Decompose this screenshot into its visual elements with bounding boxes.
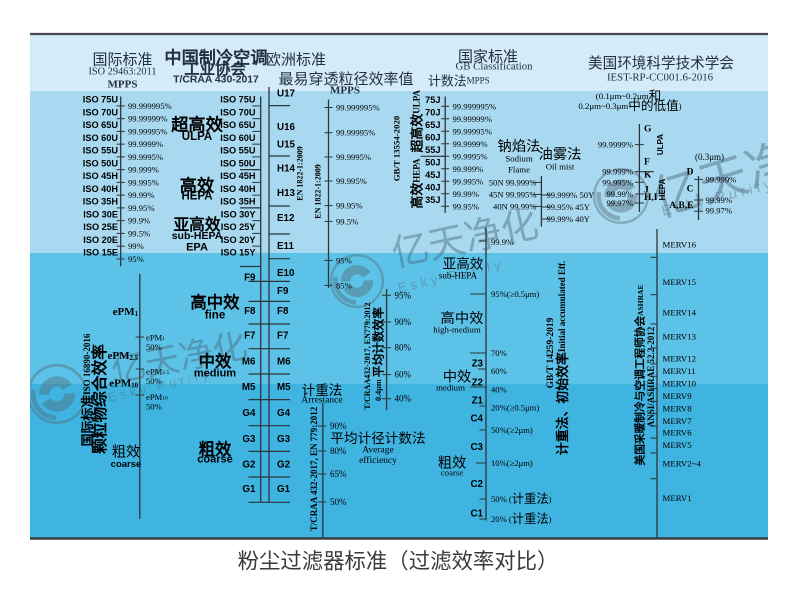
svg-text:ISO 29463:2011: ISO 29463:2011 <box>89 67 157 78</box>
svg-text:99.97%: 99.97% <box>706 206 733 216</box>
svg-text:T/CRAA 432-2017, EN 779:2012: T/CRAA 432-2017, EN 779:2012 <box>309 406 319 531</box>
svg-text:99.5%: 99.5% <box>336 216 358 226</box>
svg-text:ISO 20Y: ISO 20Y <box>221 235 256 245</box>
svg-text:35J: 35J <box>425 195 440 205</box>
svg-text:G4: G4 <box>277 408 291 419</box>
svg-text:50% (计重法): 50% (计重法) <box>491 492 552 506</box>
svg-text:ISO 50U: ISO 50U <box>220 158 256 168</box>
svg-text:E11: E11 <box>277 241 294 252</box>
svg-text:MERV14: MERV14 <box>663 308 697 318</box>
svg-text:99.999995%: 99.999995% <box>336 103 380 113</box>
svg-text:MERV7: MERV7 <box>663 416 693 426</box>
svg-text:Z1: Z1 <box>472 396 484 407</box>
svg-text:EPA: EPA <box>186 242 208 254</box>
svg-text:99.999995%: 99.999995% <box>453 101 497 111</box>
svg-text:M5: M5 <box>277 382 291 393</box>
svg-text:99.95%: 99.95% <box>336 201 363 211</box>
svg-text:MERV9: MERV9 <box>663 391 693 401</box>
svg-text:99.9999%: 99.9999% <box>128 139 163 149</box>
svg-text:F8: F8 <box>277 306 289 317</box>
svg-text:40%: 40% <box>395 394 412 404</box>
svg-text:80%: 80% <box>330 446 347 456</box>
svg-text:85%: 85% <box>336 280 352 290</box>
svg-text:99.99%: 99.99% <box>453 189 480 199</box>
svg-text:H14: H14 <box>277 164 296 175</box>
svg-text:95%: 95% <box>395 290 412 300</box>
svg-text:MERV11: MERV11 <box>663 366 696 376</box>
svg-text:油雾法: 油雾法 <box>539 146 582 163</box>
svg-text:M6: M6 <box>277 357 291 368</box>
svg-text:ISO 55U: ISO 55U <box>220 146 256 156</box>
svg-text:99.999995%: 99.999995% <box>128 101 172 111</box>
svg-text:ISO 20E: ISO 20E <box>83 235 118 245</box>
svg-text:sub-HEPA: sub-HEPA <box>439 271 478 281</box>
svg-text:50J: 50J <box>425 158 440 168</box>
svg-text:10%(≥2μm): 10%(≥2μm) <box>491 458 533 468</box>
svg-text:45N 99.995%: 45N 99.995% <box>489 189 537 199</box>
svg-text:99.995%: 99.995% <box>453 176 484 186</box>
svg-text:G2: G2 <box>277 460 291 471</box>
svg-text:U17: U17 <box>277 89 296 100</box>
svg-text:99.9%: 99.9% <box>491 237 513 247</box>
svg-text:99.99%: 99.99% <box>128 190 155 200</box>
svg-text:H13: H13 <box>277 188 296 199</box>
svg-text:M5: M5 <box>242 382 256 393</box>
svg-text:99.999%: 99.999% <box>128 165 159 175</box>
svg-text:60J: 60J <box>425 133 440 143</box>
svg-text:G2: G2 <box>242 460 256 471</box>
svg-text:40N 99.99%: 40N 99.99% <box>493 201 536 211</box>
svg-text:ISO 30Y: ISO 30Y <box>221 209 256 219</box>
svg-text:0.4μm 平均计数效率: 0.4μm 平均计数效率 <box>371 307 385 401</box>
svg-text:钠焰法: 钠焰法 <box>498 138 541 155</box>
svg-text:20%(≥0.5μm): 20%(≥0.5μm) <box>491 403 539 413</box>
svg-text:coarse: coarse <box>197 454 232 466</box>
svg-text:70%: 70% <box>491 348 507 358</box>
svg-text:99.99999%: 99.99999% <box>453 114 492 124</box>
svg-text:A,B,E: A,B,E <box>669 201 693 211</box>
svg-text:ISO 35H: ISO 35H <box>220 197 256 207</box>
svg-text:55J: 55J <box>425 145 440 155</box>
svg-text:65J: 65J <box>425 120 440 130</box>
svg-text:50N 99.999%: 50N 99.999% <box>489 177 537 187</box>
svg-text:U15: U15 <box>277 140 296 151</box>
svg-text:ANSI/ASHRAE 52.2-2012: ANSI/ASHRAE 52.2-2012 <box>646 326 656 427</box>
svg-text:99.99995%: 99.99995% <box>453 126 492 136</box>
svg-text:G: G <box>644 125 652 135</box>
svg-text:99.995%: 99.995% <box>602 177 633 187</box>
svg-text:MERV12: MERV12 <box>663 354 697 364</box>
svg-text:C4: C4 <box>470 414 483 425</box>
svg-text:MPPS: MPPS <box>330 85 360 97</box>
svg-text:ISO 70U: ISO 70U <box>220 107 256 117</box>
svg-text:HEPA: HEPA <box>658 178 667 200</box>
svg-text:99.999% 50Y: 99.999% 50Y <box>547 190 595 200</box>
svg-text:ISO 60U: ISO 60U <box>83 133 119 143</box>
svg-text:medium: medium <box>436 383 465 393</box>
svg-text:GB/T 13554-2020: GB/T 13554-2020 <box>392 115 402 181</box>
svg-text:90%: 90% <box>395 317 412 327</box>
svg-text:MERV2~4: MERV2~4 <box>663 459 702 469</box>
svg-text:90%: 90% <box>330 421 347 431</box>
svg-text:40J: 40J <box>425 183 440 193</box>
svg-text:ISO 25Y: ISO 25Y <box>221 222 256 232</box>
svg-text:Sodium: Sodium <box>505 154 533 164</box>
svg-text:99.9995%: 99.9995% <box>128 152 163 162</box>
svg-text:99.999%: 99.999% <box>453 164 484 174</box>
svg-text:ISO 75U: ISO 75U <box>83 95 119 105</box>
svg-text:MERV15: MERV15 <box>663 277 697 287</box>
svg-text:MERV16: MERV16 <box>663 240 697 250</box>
svg-text:MERV6: MERV6 <box>663 428 693 438</box>
svg-text:50%(≥2μm): 50%(≥2μm) <box>491 425 533 435</box>
svg-text:IEST-RP-CC001.6-2016: IEST-RP-CC001.6-2016 <box>607 72 714 84</box>
svg-text:99.995%: 99.995% <box>336 176 367 186</box>
svg-text:美国采暖制冷与空调工程师协会ASHRAE: 美国采暖制冷与空调工程师协会ASHRAE <box>634 285 647 466</box>
svg-text:99.95%: 99.95% <box>453 201 480 211</box>
svg-text:efficiency: efficiency <box>359 455 397 466</box>
svg-text:MERV8: MERV8 <box>663 404 693 414</box>
svg-text:99%: 99% <box>128 241 144 251</box>
svg-text:E10: E10 <box>277 268 295 279</box>
svg-text:ISO 15Y: ISO 15Y <box>221 248 256 258</box>
svg-text:ISO 45H: ISO 45H <box>220 171 256 181</box>
svg-text:high-medium: high-medium <box>433 325 481 335</box>
svg-text:coarse: coarse <box>441 468 464 478</box>
svg-text:ISO 35H: ISO 35H <box>83 197 119 207</box>
svg-text:95%(≥0.5μm): 95%(≥0.5μm) <box>491 289 539 299</box>
svg-text:50%: 50% <box>146 402 162 412</box>
svg-text:99.9995%: 99.9995% <box>453 151 488 161</box>
svg-text:95%: 95% <box>336 255 352 265</box>
svg-text:MERV13: MERV13 <box>663 332 697 342</box>
svg-text:MERV5: MERV5 <box>663 440 693 450</box>
svg-text:EN 1822-1:2009: EN 1822-1:2009 <box>296 146 305 200</box>
svg-text:99.99995%: 99.99995% <box>336 128 375 138</box>
svg-text:ISO 25E: ISO 25E <box>83 222 118 232</box>
svg-text:Arrestance: Arrestance <box>301 396 342 406</box>
svg-text:99.95%: 99.95% <box>128 203 155 213</box>
svg-text:U16: U16 <box>277 122 296 133</box>
svg-text:HEPA: HEPA <box>181 191 212 203</box>
svg-text:国际标准: 国际标准 <box>92 51 152 68</box>
svg-text:ISO 30E: ISO 30E <box>83 209 118 219</box>
svg-text:(0.3μm): (0.3μm) <box>695 152 724 162</box>
svg-text:99.9999%: 99.9999% <box>598 140 633 150</box>
svg-text:99.99%: 99.99% <box>706 195 733 205</box>
svg-text:F7: F7 <box>244 331 256 342</box>
svg-text:ISO 70U: ISO 70U <box>83 107 119 117</box>
svg-text:F9: F9 <box>277 286 289 297</box>
svg-text:M6: M6 <box>242 357 256 368</box>
svg-text:EN 1822-1:2009: EN 1822-1:2009 <box>314 164 323 218</box>
svg-text:99.999%: 99.999% <box>706 175 737 185</box>
svg-text:C3: C3 <box>470 442 483 453</box>
svg-text:MPPS: MPPS <box>108 79 138 91</box>
svg-text:T/CRAA 430-2017: T/CRAA 430-2017 <box>173 75 259 86</box>
svg-text:F8: F8 <box>244 306 256 317</box>
svg-text:99.99999%: 99.99999% <box>128 114 167 124</box>
svg-text:75J: 75J <box>425 95 440 105</box>
svg-text:ULPA: ULPA <box>182 131 212 143</box>
svg-text:ISO 55U: ISO 55U <box>83 146 119 156</box>
svg-text:99.5%: 99.5% <box>128 228 150 238</box>
svg-text:40%: 40% <box>491 385 507 395</box>
svg-text:C2: C2 <box>470 479 483 490</box>
svg-text:粗效: 粗效 <box>112 444 141 461</box>
svg-text:70J: 70J <box>425 108 440 118</box>
svg-text:99.95% 45Y: 99.95% 45Y <box>547 202 590 212</box>
svg-text:F7: F7 <box>277 331 289 342</box>
svg-text:sub-HEPA: sub-HEPA <box>172 230 223 242</box>
svg-text:ISO 75U: ISO 75U <box>220 95 256 105</box>
svg-text:medium: medium <box>194 368 236 380</box>
svg-text:颗粒物综合效率: 颗粒物综合效率 <box>90 344 109 454</box>
svg-text:GB Classification: GB Classification <box>455 61 533 73</box>
svg-text:MERV10: MERV10 <box>663 379 697 389</box>
svg-text:ISO 60U: ISO 60U <box>220 133 256 143</box>
svg-text:99.9995%: 99.9995% <box>336 152 371 162</box>
svg-text:Oil mist: Oil mist <box>546 162 575 172</box>
svg-text:G1: G1 <box>242 484 256 495</box>
svg-text:99.9999%: 99.9999% <box>453 139 488 149</box>
svg-text:ISO 65U: ISO 65U <box>83 120 119 130</box>
svg-text:Z3: Z3 <box>472 359 484 370</box>
svg-text:99.97%: 99.97% <box>607 198 634 208</box>
svg-text:fine: fine <box>205 310 225 322</box>
svg-text:美国环境科学技术学会: 美国环境科学技术学会 <box>588 54 734 72</box>
svg-text:G4: G4 <box>242 408 256 419</box>
svg-text:C1: C1 <box>470 509 483 520</box>
svg-text:ISO 45H: ISO 45H <box>83 171 119 181</box>
svg-text:50%: 50% <box>146 342 162 352</box>
svg-text:ULPA: ULPA <box>656 134 665 155</box>
svg-text:G3: G3 <box>277 434 291 445</box>
svg-text:Z2: Z2 <box>472 378 484 389</box>
svg-text:欧洲标准: 欧洲标准 <box>266 51 326 68</box>
svg-text:H,I: H,I <box>644 193 658 203</box>
svg-text:60%: 60% <box>491 366 507 376</box>
svg-text:ISO 50U: ISO 50U <box>83 158 119 168</box>
svg-text:60%: 60% <box>395 370 412 380</box>
svg-text:G3: G3 <box>242 434 256 445</box>
svg-text:Flame: Flame <box>508 165 530 175</box>
svg-text:coarse: coarse <box>111 459 142 470</box>
svg-text:ISO 65U: ISO 65U <box>220 120 256 130</box>
svg-text:ISO 40H: ISO 40H <box>83 184 119 194</box>
svg-text:ISO 15E: ISO 15E <box>83 248 118 258</box>
svg-text:50%: 50% <box>330 497 347 507</box>
svg-text:99.995%: 99.995% <box>128 177 159 187</box>
svg-text:D: D <box>687 168 694 178</box>
svg-text:F: F <box>644 158 650 168</box>
svg-text:Average: Average <box>362 446 393 456</box>
svg-text:平均计径计数法: 平均计径计数法 <box>330 431 425 446</box>
svg-text:99.99995%: 99.99995% <box>128 126 167 136</box>
svg-text:45J: 45J <box>425 170 440 180</box>
svg-text:C: C <box>687 185 694 195</box>
svg-text:ISO 40H: ISO 40H <box>220 184 256 194</box>
svg-text:50%: 50% <box>146 376 162 386</box>
svg-text:99.99% 40Y: 99.99% 40Y <box>547 214 590 224</box>
svg-text:65%: 65% <box>330 469 347 479</box>
svg-text:99.9%: 99.9% <box>128 216 150 226</box>
svg-text:亚高效: 亚高效 <box>443 255 484 271</box>
svg-text:95%: 95% <box>128 254 144 264</box>
svg-text:粉尘过滤器标准（过滤效率对比）: 粉尘过滤器标准（过滤效率对比） <box>238 550 559 574</box>
svg-text:E12: E12 <box>277 213 295 224</box>
svg-text:80%: 80% <box>395 343 412 353</box>
svg-text:T/CRAA432-2017, EN779:2012: T/CRAA432-2017, EN779:2012 <box>363 302 372 409</box>
svg-text:MERV1: MERV1 <box>663 493 692 503</box>
svg-text:20% (计重法): 20% (计重法) <box>491 512 552 526</box>
svg-text:99.999%: 99.999% <box>602 166 633 176</box>
svg-text:G1: G1 <box>277 484 291 495</box>
svg-text:0.2μm~0.3μm中的低值): 0.2μm~0.3μm中的低值) <box>578 98 681 113</box>
